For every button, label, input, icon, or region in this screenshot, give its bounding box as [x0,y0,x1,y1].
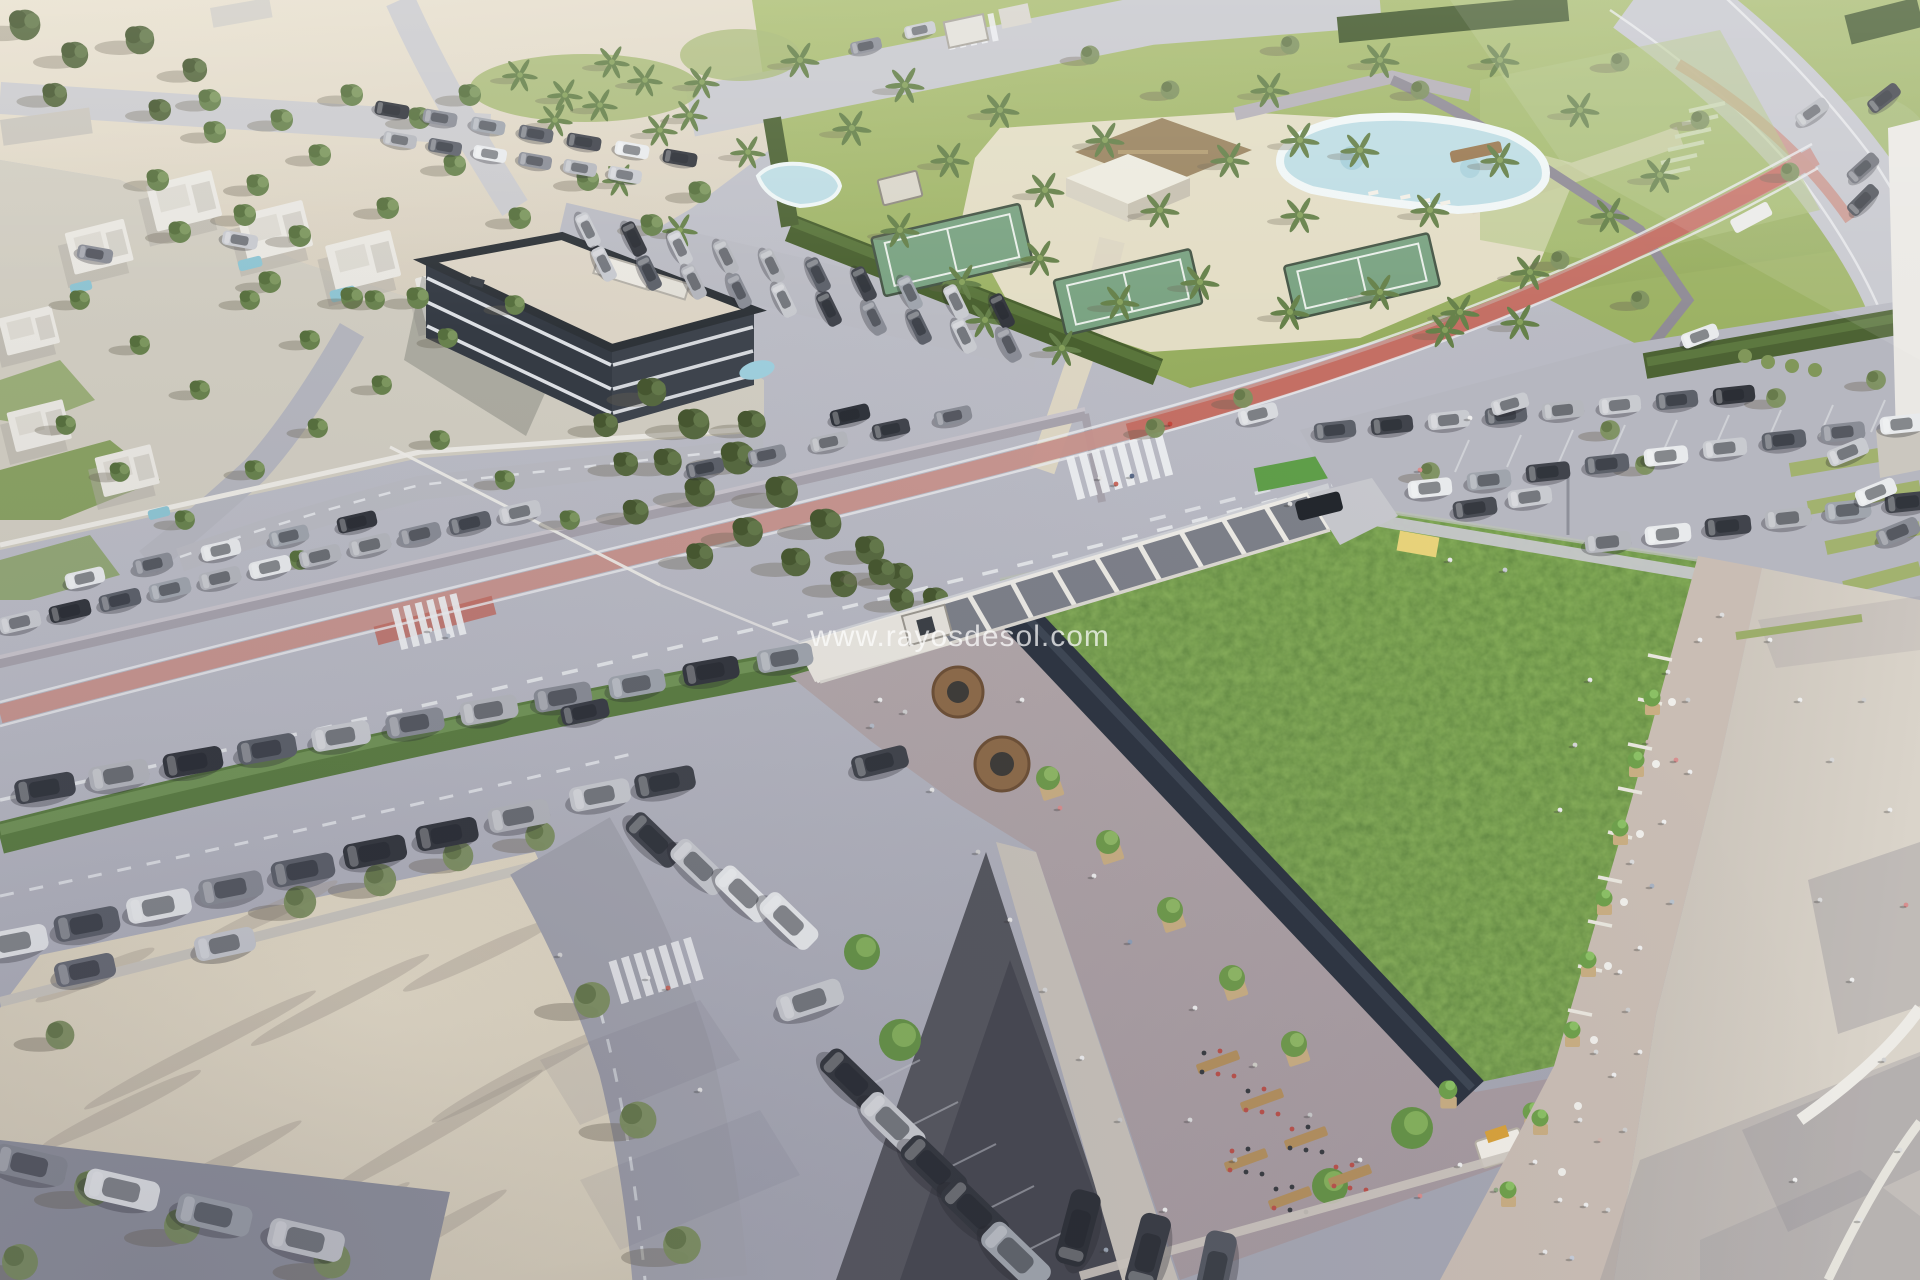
svg-text:www.rayosdesol.com: www.rayosdesol.com [809,620,1110,653]
